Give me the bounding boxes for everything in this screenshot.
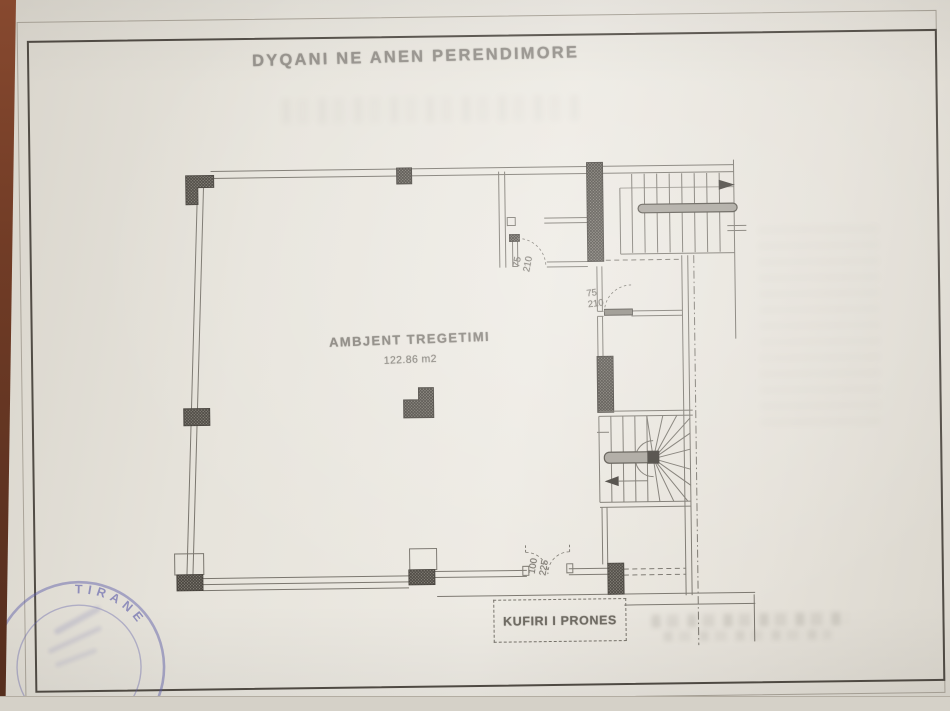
corner-column <box>186 175 214 204</box>
door-mid <box>604 285 632 315</box>
door-dimension-bottom: 100 225 <box>528 558 552 577</box>
bleed-through-text <box>282 95 582 125</box>
shear-wall-top <box>586 162 603 261</box>
direction-arrow <box>719 180 735 190</box>
room-label-group: AMBJENT TREGETIMI 122.86 m2 <box>327 329 492 369</box>
scanned-floor-plan-photo: DYQANI NE ANEN PERENDIMORE <box>0 0 950 711</box>
door-height: 210 <box>587 298 604 311</box>
bleed-through-text <box>651 612 847 628</box>
property-boundary-label-box: KUFIRI I PRONES <box>493 598 627 643</box>
staircase-winder <box>597 410 694 507</box>
paper-sheet: DYQANI NE ANEN PERENDIMORE <box>0 0 950 711</box>
paper-bottom-edge <box>0 696 950 711</box>
shear-wall-mid <box>597 356 614 412</box>
bleed-through-lines <box>758 225 881 427</box>
door-dimension-mid: 75 210 <box>586 287 605 311</box>
doors <box>509 233 635 576</box>
staircase-upper <box>620 173 738 255</box>
official-stamp: TIRANE <box>0 581 165 711</box>
structural-columns <box>172 162 625 600</box>
center-column <box>403 388 433 418</box>
property-boundary-label: KUFIRI I PRONES <box>503 613 617 628</box>
stamp-smudge <box>47 605 103 668</box>
handrail <box>638 203 737 213</box>
